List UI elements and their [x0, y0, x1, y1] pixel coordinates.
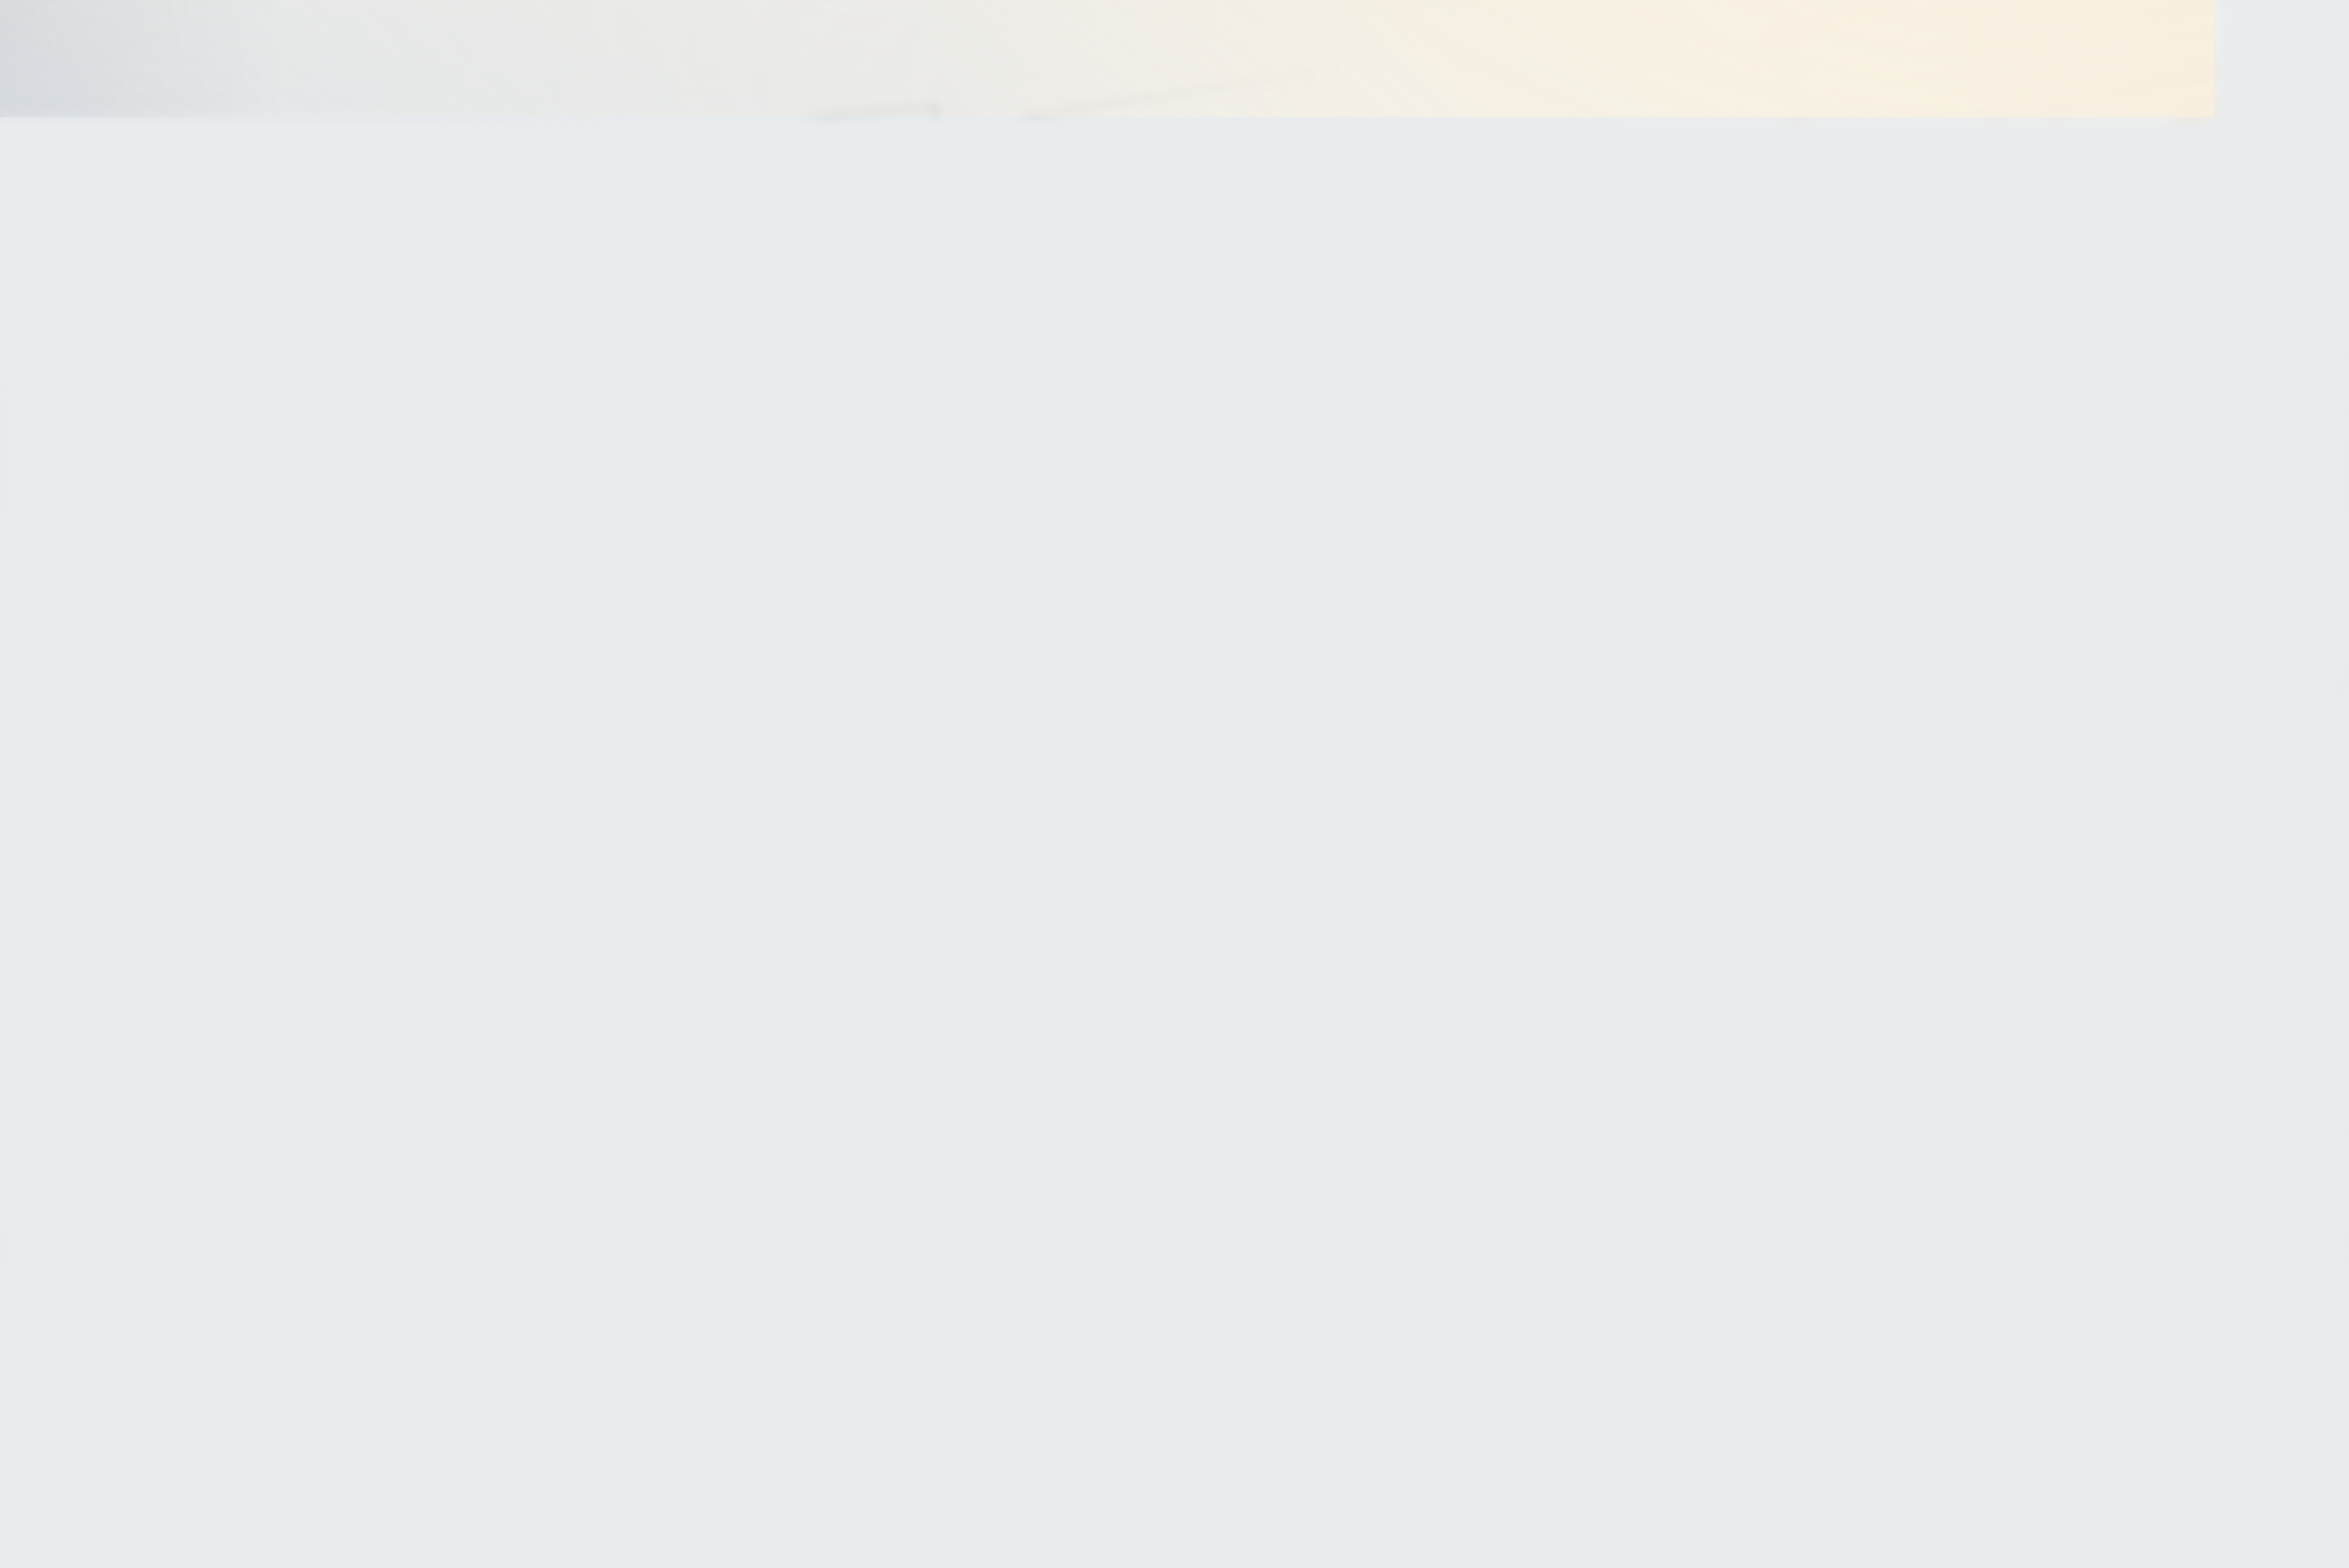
fraction-bottom: В11 [1811, 732, 1850, 762]
dimension-label: 120 [1113, 497, 1165, 537]
dimension-label: 900 [931, 738, 984, 777]
dimension-label: 4830 [178, 650, 218, 717]
axis-letter: 3 [2017, 1408, 2047, 1457]
fraction-mark: 6Б3 [767, 1129, 833, 1199]
dimension-label: 3270 [332, 890, 373, 957]
dimension-label: 1000 [2272, 229, 2340, 273]
fraction-top: 29 [1799, 698, 1831, 730]
dimension-label: 1710 [1266, 649, 1334, 692]
room-bubble: 6 [1030, 547, 1122, 628]
axis-letter: В [6, 830, 41, 880]
dimension-label: 570 [1235, 1012, 1287, 1051]
dimension-lines [0, 200, 2349, 1568]
dimension-label: 9950 [1038, 1440, 1105, 1481]
blueprint-sheet: 1565048303270108032704400107510751000157… [0, 0, 2349, 1568]
room-number: 1 [992, 693, 1021, 740]
labels-layer: 1565048303270108032704400107510751000157… [0, 229, 2349, 1568]
partition-walls [425, 338, 1251, 859]
warm-sheet-lines [1707, 0, 2349, 305]
dimension-label: 420 [1991, 698, 2032, 751]
axis-letter: Б [35, 1142, 70, 1192]
fraction-mark: 13Б6 [1590, 661, 1655, 729]
dimension-label: 4400 [231, 920, 272, 987]
dimension-label: 970 [780, 1083, 832, 1122]
dimension-label: 1425 [1193, 730, 1261, 773]
dimension-label: 970 [1284, 908, 1338, 952]
dimension-label: 1250 [729, 769, 796, 812]
room-number: 3 [667, 862, 696, 908]
dimension-label: 2400 [1020, 770, 1088, 813]
room-number: 6 [1061, 565, 1090, 612]
door-swings [613, 599, 1575, 1029]
fraction-bottom: Б3 [799, 1166, 828, 1194]
dimension-label: 520 [2249, 1201, 2289, 1254]
axis-bubble: Б [0, 1110, 108, 1222]
axis-bubble: 3 [1982, 1382, 2081, 1481]
fraction-top: 13 [1604, 663, 1635, 695]
dimension-label: 1700 [1892, 804, 1960, 846]
dimension-label: 120 [675, 577, 728, 617]
dimension-label: 1560 [631, 1116, 699, 1159]
dimension-label: 810 [2142, 922, 2182, 975]
dimension-label: 2270 [1079, 984, 1147, 1028]
dimension-label: 120 [774, 828, 826, 867]
dimension-label: 15650 [7, 579, 50, 662]
dimension-label: 7560 [2148, 1064, 2215, 1105]
dimension-label: 900 [1303, 706, 1355, 746]
room-bubble: 9 [960, 442, 1052, 524]
dimension-label: 3270 [215, 561, 255, 628]
dimension-label: 4450 [1525, 1320, 1592, 1361]
room-number: 4 [627, 550, 656, 597]
axis-bubble: В [0, 802, 75, 906]
dimension-label: 1035 [1488, 940, 1556, 983]
dimension-label: 975 [599, 921, 651, 961]
dimension-label: 520 [482, 566, 534, 606]
dimension-label: 810 [841, 751, 894, 791]
dimension-label: 1650 [1612, 526, 1680, 568]
room-number: 9 [992, 461, 1021, 507]
dimension-label: 25760 [2150, 1163, 2232, 1207]
dimension-label: 2680 [1508, 549, 1575, 591]
dimension-label: 1000 [481, 522, 549, 565]
dimension-label: 970 [2140, 837, 2180, 890]
dimension-label: 2835 [736, 513, 776, 580]
dimension-label: 1035 [1215, 930, 1285, 980]
fraction-bottom: Б6 [1621, 697, 1650, 725]
dimension-label: 2010 [1046, 700, 1114, 743]
dimension-label: 600 [803, 624, 841, 676]
dimension-label: 2660 [1998, 768, 2066, 810]
dimension-label: 900 [571, 782, 623, 821]
dimension-label: 1100 [695, 900, 761, 942]
dimension-label: 570 [1021, 1094, 1074, 1133]
blueprint-photo: 1565048303270108032704400107510751000157… [0, 0, 2349, 1568]
room-number: 2 [1633, 752, 1663, 799]
dimension-label: 120 [869, 637, 910, 690]
fraction-top: 6 [788, 1133, 807, 1162]
dimension-label: 1560 [909, 1051, 977, 1095]
dimension-label: 700 [1374, 688, 1426, 728]
axis-lines [43, 291, 2325, 1568]
note-text: См. п. прим. 6 [482, 649, 683, 721]
dimension-label: 3500 [1030, 510, 1097, 553]
dimension-label: 2660 [1709, 836, 1776, 878]
dimension-label: 1080 [306, 755, 346, 822]
dimension-label: 1075 [429, 1032, 470, 1099]
dimension-label: 900 [488, 794, 540, 833]
dimension-label: 1075 [390, 439, 430, 506]
fraction-mark: 29В11 [1786, 695, 1851, 764]
